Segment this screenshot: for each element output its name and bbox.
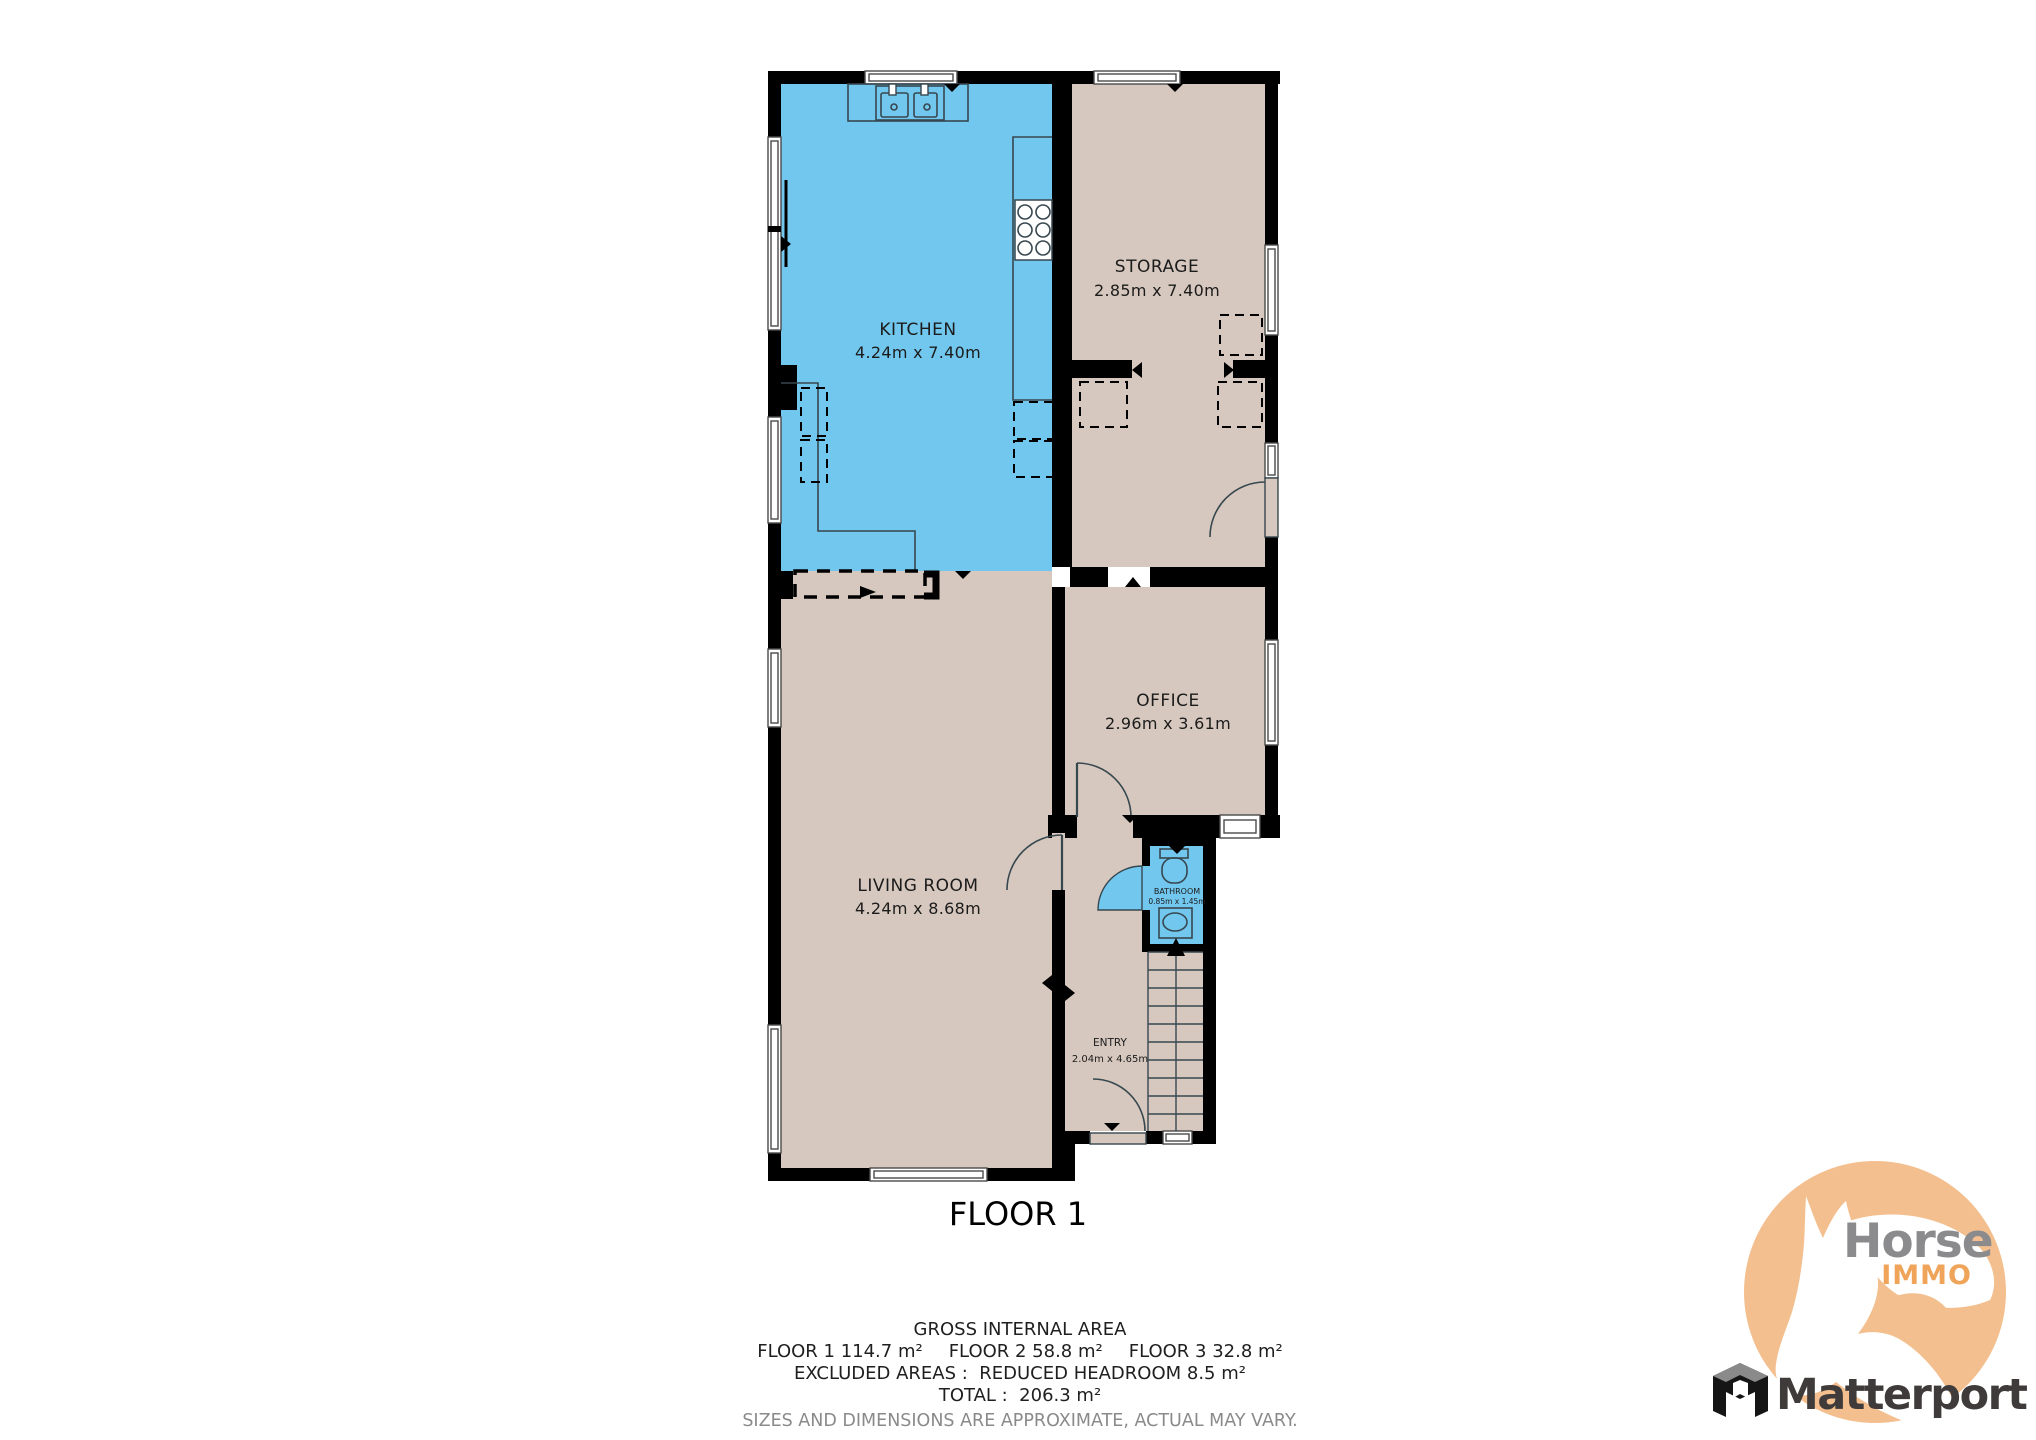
footer: GROSS INTERNAL AREA FLOOR 1 114.7 m²FLOO… — [742, 1319, 1297, 1431]
excluded-areas-line: EXCLUDED AREAS : REDUCED HEADROOM 8.5 m² — [794, 1363, 1246, 1384]
floor-plan-canvas: KITCHEN 4.24m x 7.40m STORAGE 2.85m x 7.… — [0, 0, 2036, 1440]
room-dims-kitchen: 4.24m x 7.40m — [855, 343, 981, 362]
window — [1265, 245, 1278, 335]
stove — [1015, 200, 1052, 260]
floor-areas-line: FLOOR 1 114.7 m²FLOOR 2 58.8 m²FLOOR 3 3… — [757, 1341, 1283, 1362]
room-dims-living-room: 4.24m x 8.68m — [855, 899, 981, 918]
room-dims-entry: 2.04m x 4.65m — [1072, 1054, 1148, 1065]
gross-internal-area-title: GROSS INTERNAL AREA — [914, 1319, 1128, 1340]
room-dims-office: 2.96m x 3.61m — [1105, 714, 1231, 733]
window — [1094, 71, 1180, 84]
room-label-entry: ENTRY — [1093, 1037, 1128, 1049]
window — [768, 649, 781, 727]
side-door-slab — [1265, 478, 1278, 537]
room-label-living-room: LIVING ROOM — [857, 876, 978, 896]
floor2-area: FLOOR 2 58.8 m² — [949, 1341, 1103, 1362]
room-dims-bathroom: 0.85m x 1.45m — [1148, 897, 1205, 906]
disclaimer-line: SIZES AND DIMENSIONS ARE APPROXIMATE, AC… — [742, 1411, 1297, 1431]
window — [768, 417, 781, 523]
room-label-bathroom: BATHROOM — [1154, 887, 1200, 896]
matterport-logo-text: Matterport — [1776, 1370, 2027, 1420]
room-dims-storage: 2.85m x 7.40m — [1094, 281, 1220, 300]
window — [870, 1168, 987, 1181]
matterport-icon — [1713, 1363, 1768, 1417]
room-label-office: OFFICE — [1136, 691, 1200, 711]
window — [768, 137, 781, 330]
floor1-area: FLOOR 1 114.7 m² — [757, 1341, 922, 1362]
window — [1265, 640, 1278, 745]
total-area-line: TOTAL : 206.3 m² — [938, 1385, 1101, 1406]
window — [1220, 815, 1260, 838]
floor-title: FLOOR 1 — [949, 1195, 1087, 1233]
immo-logo-text: IMMO — [1881, 1260, 1972, 1291]
window — [768, 1025, 781, 1153]
front-door-slab — [1090, 1133, 1146, 1144]
room-label-storage: STORAGE — [1115, 257, 1199, 277]
floor3-area: FLOOR 3 32.8 m² — [1129, 1341, 1283, 1362]
storage-floor — [1072, 84, 1265, 567]
room-label-kitchen: KITCHEN — [879, 320, 956, 340]
window — [1163, 1131, 1192, 1144]
window — [865, 71, 957, 84]
window — [1265, 443, 1278, 478]
matterport-logo: Matterport — [1713, 1363, 2027, 1420]
